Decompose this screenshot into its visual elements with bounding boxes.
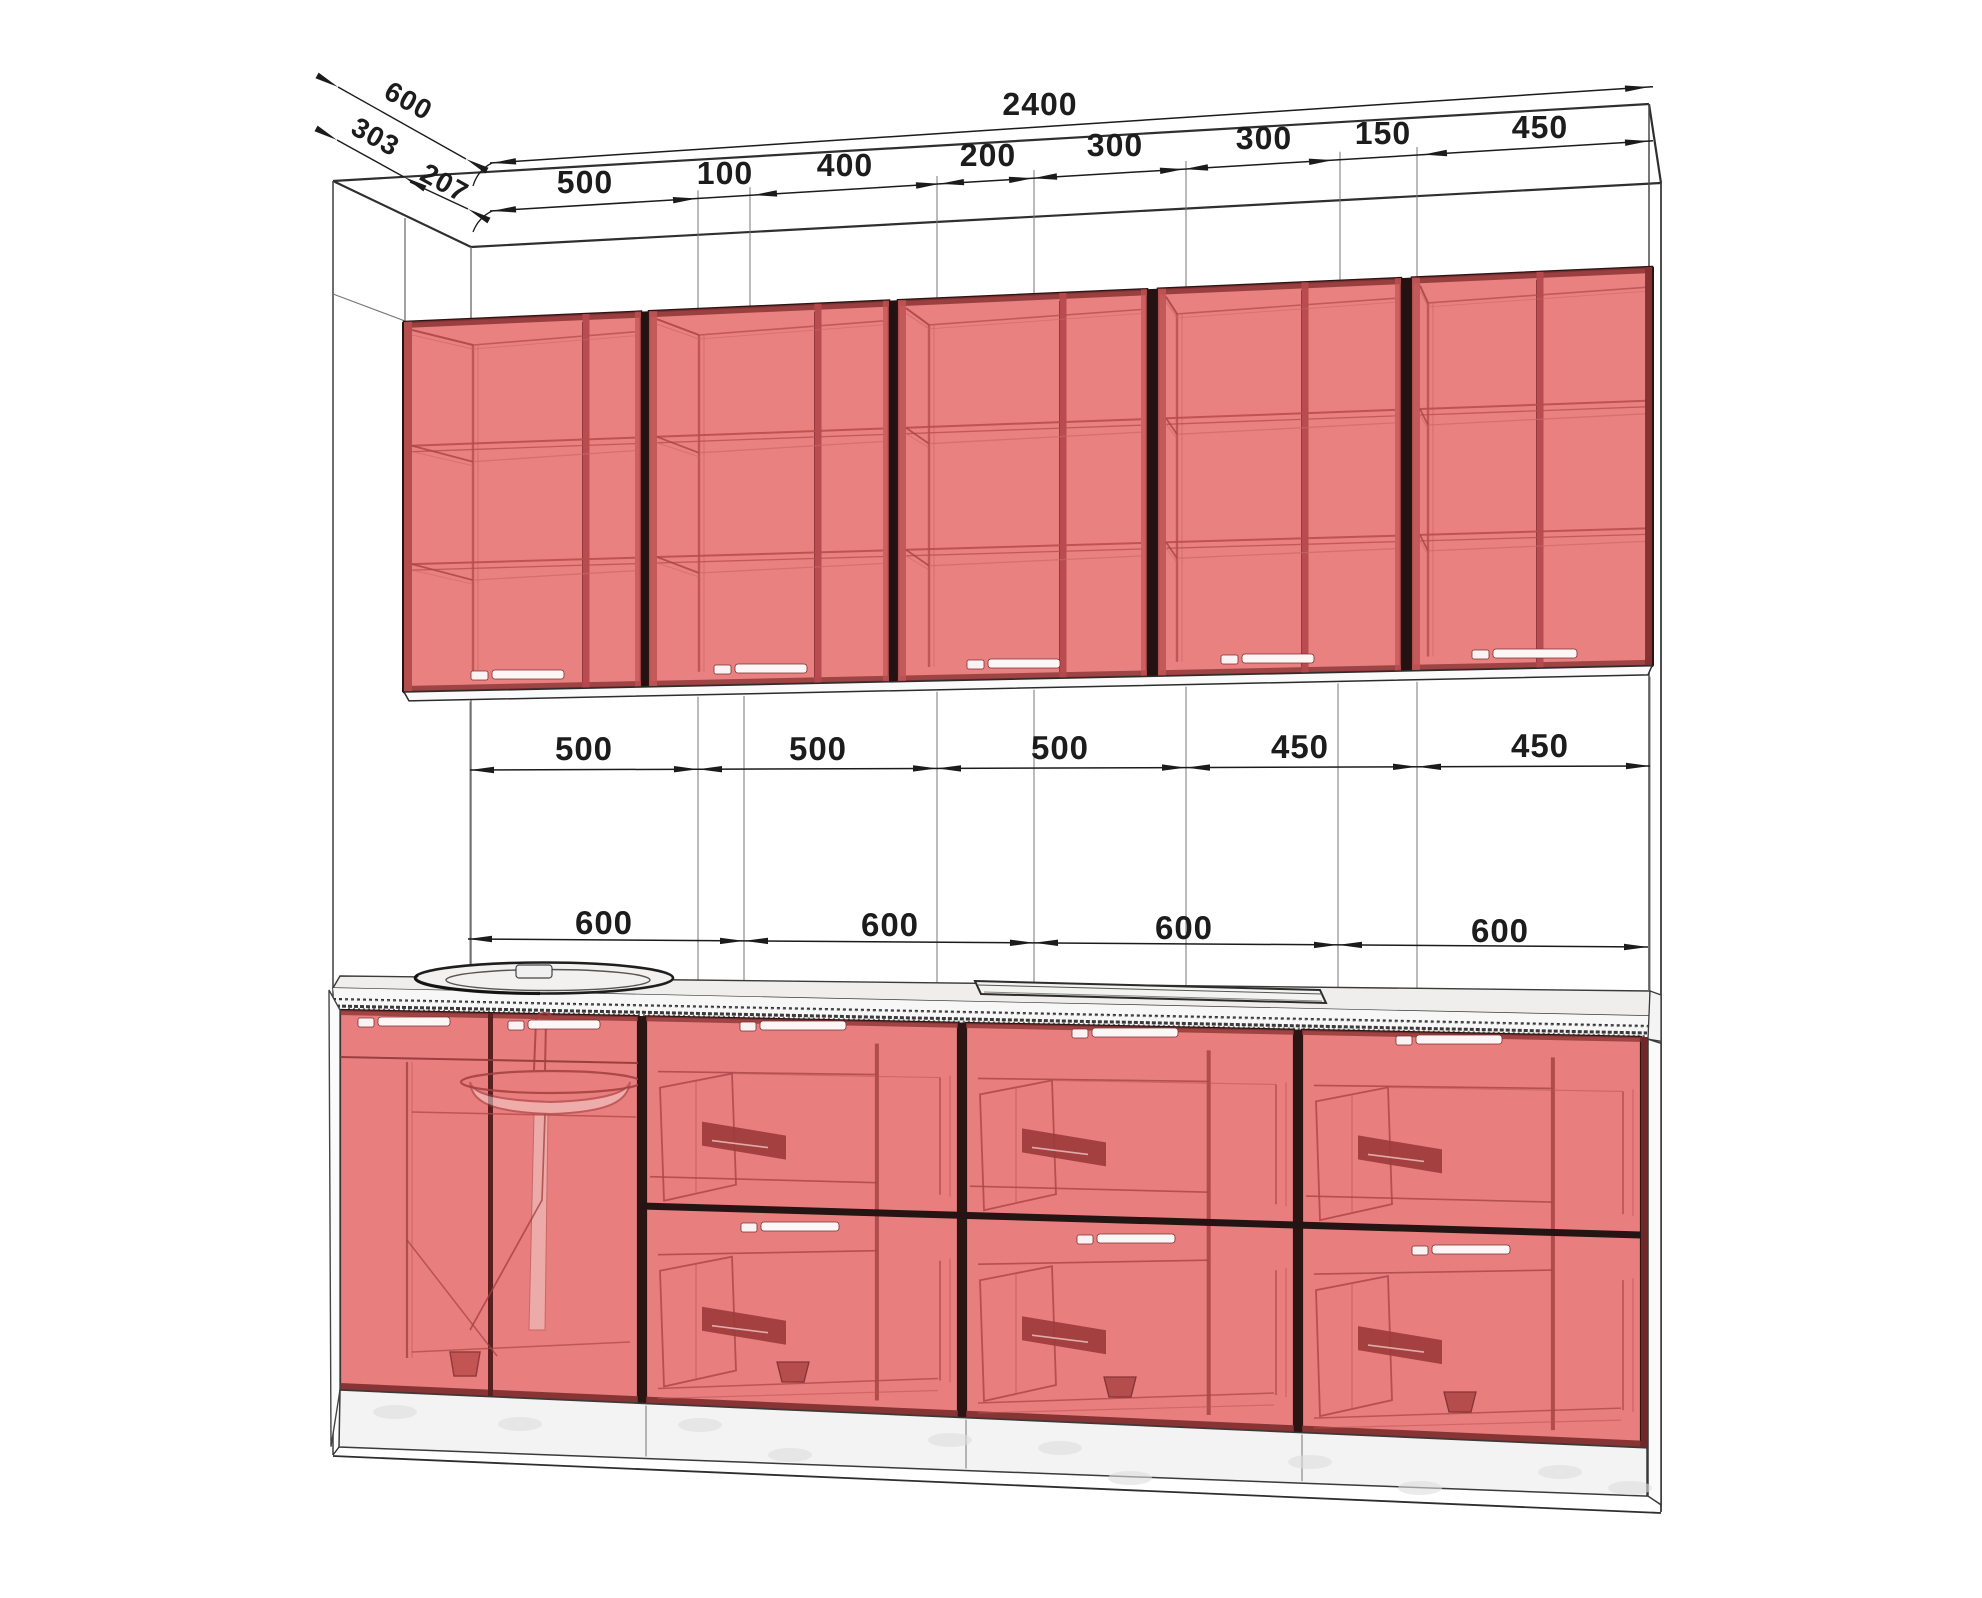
svg-text:450: 450: [1512, 109, 1568, 145]
svg-text:450: 450: [1271, 728, 1329, 765]
svg-text:300: 300: [1087, 127, 1143, 163]
svg-text:500: 500: [555, 730, 613, 767]
svg-text:400: 400: [817, 147, 873, 183]
svg-text:150: 150: [1355, 115, 1411, 151]
svg-text:500: 500: [557, 164, 613, 200]
svg-text:500: 500: [789, 730, 847, 767]
svg-text:500: 500: [1031, 729, 1089, 766]
svg-text:2400: 2400: [1002, 86, 1077, 122]
svg-text:600: 600: [1155, 909, 1213, 946]
svg-text:100: 100: [697, 155, 753, 191]
svg-text:450: 450: [1511, 727, 1569, 764]
svg-text:600: 600: [575, 904, 633, 941]
svg-text:600: 600: [861, 906, 919, 943]
svg-text:600: 600: [1471, 912, 1529, 949]
svg-text:300: 300: [1236, 120, 1292, 156]
svg-text:200: 200: [960, 137, 1016, 173]
